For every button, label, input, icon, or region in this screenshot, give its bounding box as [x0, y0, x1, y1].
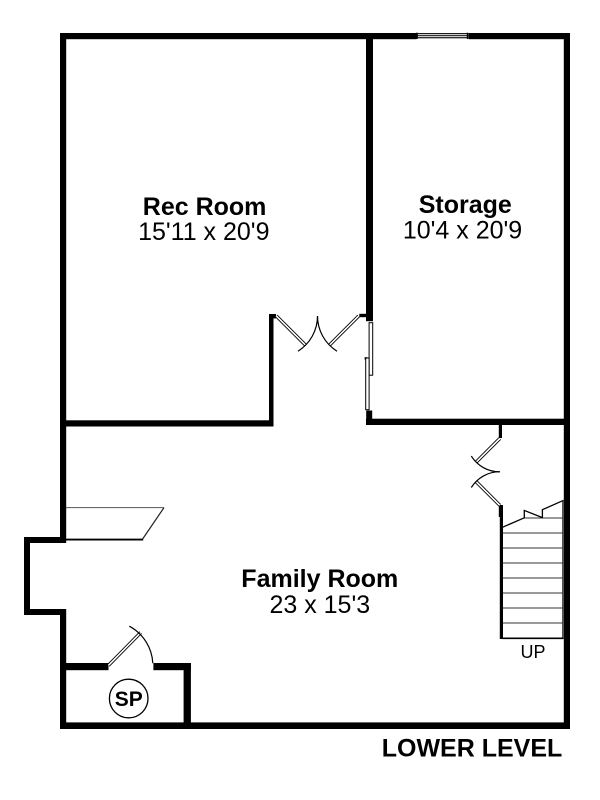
svg-text:SP: SP [115, 688, 143, 711]
svg-text:Family Room: Family Room [241, 565, 398, 593]
svg-text:UP: UP [520, 642, 545, 662]
svg-text:LOWER LEVEL: LOWER LEVEL [382, 735, 563, 763]
svg-text:15'11 x 20'9: 15'11 x 20'9 [138, 218, 269, 246]
svg-text:Storage: Storage [419, 191, 512, 219]
svg-text:23 x 15'3: 23 x 15'3 [269, 591, 370, 619]
svg-text:Rec Room: Rec Room [143, 193, 267, 221]
svg-text:10'4 x 20'9: 10'4 x 20'9 [403, 217, 522, 245]
